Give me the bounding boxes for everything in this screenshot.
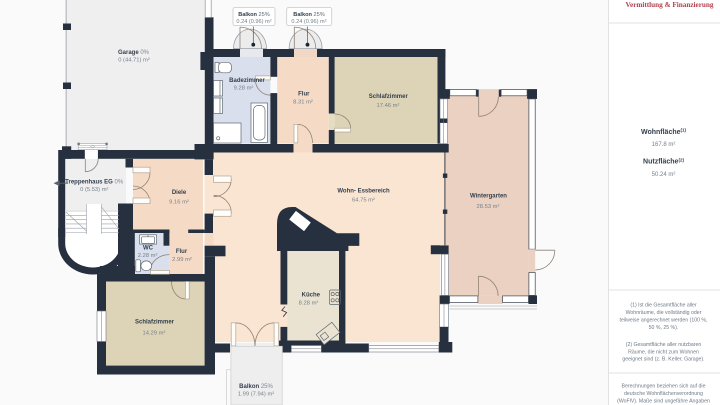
svg-text:Balkon 25%: Balkon 25% [238,12,269,18]
svg-text:0.24 (0.96) m²: 0.24 (0.96) m² [236,19,271,25]
svg-text:8.28 m²: 8.28 m² [299,300,319,306]
svg-text:9.28 m²: 9.28 m² [234,86,254,92]
svg-text:2.28 m²: 2.28 m² [138,253,158,259]
svg-text:167.8 m²: 167.8 m² [652,142,676,148]
svg-text:Wohnräume, die vollständig ode: Wohnräume, die vollständig oder [626,310,702,316]
svg-text:Treppenhaus EG 0%: Treppenhaus EG 0% [65,180,124,186]
svg-text:50.24 m²: 50.24 m² [652,172,676,178]
svg-text:0.24 (0.96) m²: 0.24 (0.96) m² [291,19,326,25]
svg-text:WC: WC [143,246,154,252]
svg-text:8.31 m²: 8.31 m² [293,100,313,106]
svg-text:geeignet sind (z. B. Keller, G: geeignet sind (z. B. Keller, Garage). [622,357,704,363]
svg-text:14.29 m²: 14.29 m² [143,330,166,336]
svg-text:2.99 m²: 2.99 m² [172,257,192,263]
svg-text:Wintergarten: Wintergarten [470,193,507,199]
svg-text:Berechnungen beziehen sich auf: Berechnungen beziehen sich auf die [622,384,706,390]
svg-text:deutsche Wohnflächenverordnung: deutsche Wohnflächenverordnung [624,391,703,397]
svg-text:50 %, 25 %).: 50 %, 25 %). [649,325,679,331]
svg-text:(1) Ist die Gesamtfläche aller: (1) Ist die Gesamtfläche aller [630,303,697,309]
svg-text:Flur: Flur [298,91,310,97]
svg-text:Räume, die nicht zum Wohnen: Räume, die nicht zum Wohnen [628,349,699,355]
svg-text:Nutzfläche(2): Nutzfläche(2) [643,157,684,165]
svg-text:Wohn- Essbereich: Wohn- Essbereich [337,188,390,194]
svg-text:Schlafzimmer: Schlafzimmer [369,94,409,100]
svg-text:17.46 m²: 17.46 m² [377,103,400,109]
svg-text:Balkon 25%: Balkon 25% [239,384,273,390]
svg-text:(WoFlV). Maße sind ungefähre A: (WoFlV). Maße sind ungefähre Angaben [617,398,710,404]
svg-text:Küche: Küche [302,293,321,299]
svg-text:Balkon 25%: Balkon 25% [293,12,324,18]
svg-text:(2) Gesamtfläche aller nutzbar: (2) Gesamtfläche aller nutzbaren [626,342,702,348]
svg-text:9.16 m²: 9.16 m² [169,199,189,205]
svg-text:1.99 (7.94) m²: 1.99 (7.94) m² [238,392,274,398]
svg-text:Schlafzimmer: Schlafzimmer [135,320,175,326]
svg-text:0 (44.71) m²: 0 (44.71) m² [118,58,150,64]
svg-text:Vermittlung & Finanzierung: Vermittlung & Finanzierung [626,1,714,9]
svg-text:Garage 0%: Garage 0% [118,50,150,56]
svg-text:teilweise angerechnet werden (: teilweise angerechnet werden (100 %, [620,318,708,324]
svg-text:Badezimmer: Badezimmer [229,78,265,84]
svg-text:Wohnfläche(1): Wohnfläche(1) [641,128,687,136]
svg-text:Flur: Flur [176,249,188,255]
svg-text:Diele: Diele [172,190,187,196]
svg-text:28.53 m²: 28.53 m² [477,204,500,210]
svg-text:0 (5.53) m²: 0 (5.53) m² [80,187,108,193]
svg-text:64.75 m²: 64.75 m² [352,197,375,203]
